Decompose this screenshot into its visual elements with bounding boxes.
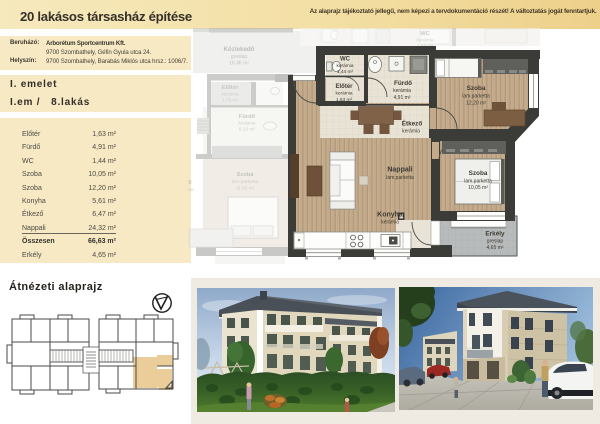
svg-text:lam.parketta: lam.parketta <box>232 179 259 185</box>
svg-text:lam.parketta: lam.parketta <box>462 94 490 100</box>
svg-text:4,65 m²: 4,65 m² <box>487 245 504 251</box>
svg-text:WC: WC <box>420 31 430 37</box>
svg-text:kerámia: kerámia <box>402 129 420 135</box>
svg-text:kerámia: kerámia <box>416 38 433 44</box>
svg-text:Szoba: Szoba <box>469 170 488 177</box>
svg-text:Előtér: Előtér <box>222 85 239 91</box>
svg-text:lam.parketta: lam.parketta <box>464 179 492 185</box>
svg-text:kerámia: kerámia <box>336 63 353 69</box>
svg-text:1,44 m²: 1,44 m² <box>337 69 354 75</box>
svg-text:kerámia: kerámia <box>381 220 399 226</box>
svg-text:11,60 m²: 11,60 m² <box>236 186 255 192</box>
svg-text:16,46 m²: 16,46 m² <box>229 61 249 67</box>
svg-text:Szoba: Szoba <box>467 85 486 92</box>
svg-text:Szoba: Szoba <box>236 172 254 178</box>
svg-text:greslap: greslap <box>487 239 504 245</box>
svg-text:Nappali: Nappali <box>387 167 412 174</box>
svg-text:Közlekedő: Közlekedő <box>224 46 255 53</box>
svg-text:1,63 m²: 1,63 m² <box>336 97 353 103</box>
svg-text:10,05 m²: 10,05 m² <box>468 185 488 191</box>
svg-text:Erkély: Erkély <box>485 231 505 238</box>
svg-text:WC: WC <box>340 57 351 63</box>
svg-text:kerámia: kerámia <box>335 91 352 97</box>
svg-text:tta: tta <box>188 187 194 193</box>
svg-text:Étkező: Étkező <box>402 119 423 128</box>
svg-text:12,20 m²: 12,20 m² <box>466 101 486 107</box>
svg-text:kerámia: kerámia <box>221 92 238 98</box>
svg-text:1,75 m²: 1,75 m² <box>222 98 239 104</box>
svg-text:Konyha: Konyha <box>377 212 403 219</box>
svg-text:4,91 m²: 4,91 m² <box>394 95 411 101</box>
svg-text:Előtér: Előtér <box>335 84 353 90</box>
svg-text:lam.parketta: lam.parketta <box>386 175 414 181</box>
svg-text:Fürdő: Fürdő <box>394 80 412 87</box>
svg-text:kerámia: kerámia <box>238 121 255 127</box>
svg-text:6,10 m²: 6,10 m² <box>239 127 256 133</box>
svg-text:greslap: greslap <box>231 54 248 60</box>
svg-text:Fürdő: Fürdő <box>239 114 256 120</box>
svg-text:li: li <box>188 180 192 186</box>
svg-text:kerámia: kerámia <box>393 88 411 94</box>
